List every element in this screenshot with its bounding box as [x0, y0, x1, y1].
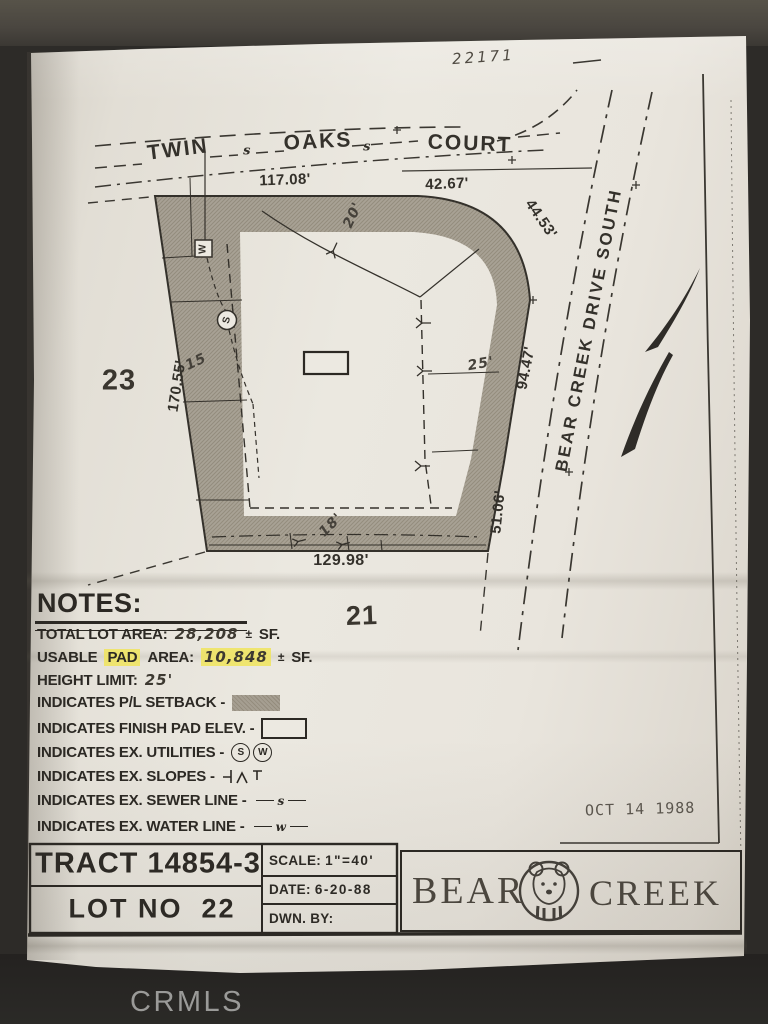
unit-label: SF.: [259, 626, 280, 643]
logo-word-creek: CREEK: [589, 872, 722, 914]
note-ex-water-line: INDICATES EX. WATER LINE - w: [37, 818, 310, 835]
sewer-line-letter: s: [363, 140, 371, 155]
note-label: USABLE: [37, 649, 97, 666]
note-usable-pad-area: USABLE PAD AREA: 10,848 ± SF.: [37, 648, 319, 666]
dimension-bottom: 129.98': [313, 552, 369, 570]
drawn-by-label: DWN. BY:: [269, 911, 333, 926]
line-segment: [288, 800, 306, 801]
date-value: 6-20-88: [315, 882, 372, 897]
date-row: DATE: 6-20-88: [269, 882, 372, 897]
slope-symbols: [292, 241, 432, 550]
plus-minus: ±: [246, 627, 252, 641]
plus-minus: ±: [278, 650, 284, 664]
note-total-lot-area: TOTAL LOT AREA: 28,208 ± SF.: [37, 625, 287, 643]
height-limit-value: 25': [145, 671, 173, 689]
received-date-stamp: OCT 14 1988: [585, 799, 696, 820]
adjacent-lot-23: 23: [102, 365, 136, 398]
note-ex-sewer-line: INDICATES EX. SEWER LINE - s: [37, 792, 308, 809]
highlighted-word-pad: PAD: [104, 649, 140, 666]
sewer-circle-symbol: S: [231, 743, 250, 762]
unit-label: SF.: [291, 649, 312, 666]
scale-row: SCALE: 1"=40': [269, 853, 374, 868]
total-lot-area-value: 28,208: [175, 625, 239, 643]
note-label: INDICATES FINISH PAD ELEV. -: [37, 720, 254, 737]
note-pl-setback: INDICATES P/L SETBACK -: [37, 694, 287, 711]
usable-pad-area-value: 10,848: [201, 648, 271, 666]
note-finish-pad-elev: INDICATES FINISH PAD ELEV. -: [37, 718, 314, 739]
slope-symbol-icon: [222, 767, 264, 785]
sewer-letter: s: [278, 794, 285, 808]
note-label: INDICATES EX. WATER LINE -: [37, 818, 245, 835]
note-label: INDICATES EX. SLOPES -: [37, 768, 215, 785]
tract-number: TRACT 14854-3: [35, 848, 261, 881]
dimension-top-right: 42.67': [425, 175, 469, 194]
drawn-by-row: DWN. BY:: [269, 911, 333, 926]
setback-swatch: [232, 695, 280, 711]
scale-value: 1"=40': [325, 853, 374, 868]
lot-number: LOT NO 22: [68, 894, 235, 925]
crmls-watermark: CRMLS: [130, 986, 244, 1019]
note-height-limit: HEIGHT LIMIT: 25': [37, 671, 180, 689]
scale-label: SCALE:: [269, 853, 321, 868]
water-meter-letter: W: [198, 244, 209, 254]
logo-word-bear: BEAR: [412, 869, 525, 913]
north-arrow-icon: [621, 268, 700, 457]
street-name-court: COURT: [427, 131, 512, 158]
bear-emblem-icon: [520, 862, 578, 920]
line-segment: [290, 826, 308, 827]
line-segment: [254, 826, 272, 827]
adjacent-lot-21: 21: [345, 600, 378, 632]
sewer-line-letter: s: [243, 144, 251, 159]
date-label: DATE:: [269, 882, 311, 897]
note-ex-slopes: INDICATES EX. SLOPES -: [37, 767, 271, 785]
finish-pad-box-symbol: [261, 718, 307, 739]
photo-of-plat-document: 22171 TWIN s OAKS s COURT BEAR CREEK DRI…: [0, 0, 768, 1024]
note-label: TOTAL LOT AREA:: [37, 626, 168, 643]
street-name-oaks: OAKS: [283, 128, 353, 156]
note-ex-utilities: INDICATES EX. UTILITIES - S W: [37, 743, 275, 762]
line-segment: [256, 800, 274, 801]
note-label: AREA:: [147, 649, 194, 666]
note-label: HEIGHT LIMIT:: [37, 672, 138, 689]
water-letter: w: [276, 820, 286, 834]
note-label: INDICATES EX. UTILITIES -: [37, 744, 224, 761]
note-label: INDICATES EX. SEWER LINE -: [37, 792, 247, 809]
water-circle-symbol: W: [253, 743, 272, 762]
finish-pad-elevation-box: [304, 352, 348, 374]
note-label: INDICATES P/L SETBACK -: [37, 694, 225, 711]
sheet-border: [560, 74, 741, 858]
dimension-top-left: 117.08': [259, 171, 311, 190]
notes-heading: NOTES:: [37, 588, 142, 619]
